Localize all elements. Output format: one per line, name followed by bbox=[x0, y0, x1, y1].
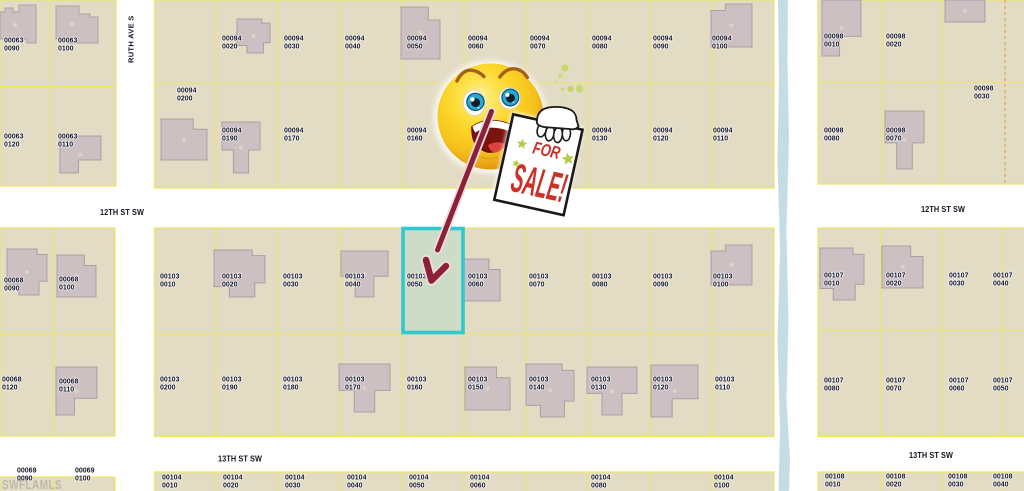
svg-text:13TH ST SW: 13TH ST SW bbox=[218, 454, 263, 464]
svg-text:12TH ST SW: 12TH ST SW bbox=[921, 204, 966, 214]
svg-text:RUTH AVE S: RUTH AVE S bbox=[127, 15, 136, 63]
svg-text:13TH ST SW: 13TH ST SW bbox=[909, 450, 954, 460]
svg-text:12TH ST SW: 12TH ST SW bbox=[100, 207, 145, 217]
svg-text:SWFLAMLS: SWFLAMLS bbox=[2, 478, 62, 491]
